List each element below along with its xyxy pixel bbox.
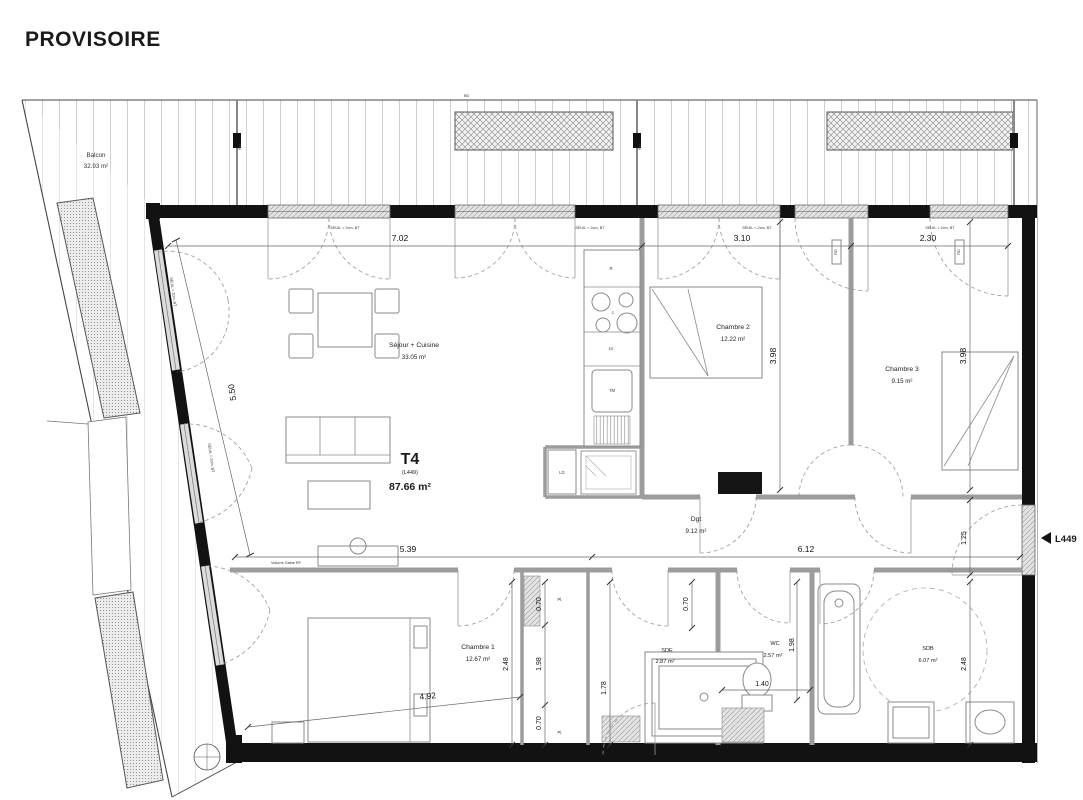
room-label-sejour: Séjour + Cuisine — [389, 342, 439, 349]
duct-note: Volume Gaine RF — [271, 561, 302, 565]
balcony-label: Balcon — [87, 152, 106, 159]
room-area-chambre1: 12.67 m² — [466, 656, 490, 663]
room-label-wc: WC — [770, 641, 779, 647]
sdb-washbasin — [966, 702, 1014, 743]
drawing-status-title: PROVISOIRE — [25, 28, 161, 51]
dim-closet-mid: 1.98 — [536, 657, 543, 671]
wardrobe — [718, 472, 762, 494]
seuil-note: SEUIL < 2cm, BT — [925, 226, 955, 230]
room-area-sejour: 33.05 m² — [402, 354, 426, 361]
dim-sejour-bottom: 5.39 — [400, 544, 417, 554]
room-area-chambre3: 9.15 m² — [892, 378, 913, 385]
washer-code: LG — [559, 470, 565, 475]
hob-code: C — [612, 311, 615, 315]
dim-ch3-side: 3.98 — [958, 347, 968, 364]
planter-tie — [47, 421, 88, 424]
dim-sde-side: 1.78 — [601, 681, 608, 695]
duct-box — [581, 451, 636, 494]
closet-code: Pl. — [558, 730, 563, 735]
balcony-divider-post — [1010, 133, 1018, 148]
rd-code: RD — [834, 249, 838, 255]
seuil-note: SEUIL < 2cm, BT — [742, 226, 772, 230]
wc-duct — [722, 708, 764, 742]
dim-sejour-top: 7.02 — [392, 233, 409, 243]
room-label-sde: SDE — [661, 648, 673, 654]
room-area-sdb: 6.07 m² — [919, 658, 938, 664]
window — [658, 205, 780, 218]
bd-code: BD — [464, 94, 470, 98]
dim-entry-side: 1.25 — [961, 531, 968, 545]
unit-lot: (L449) — [402, 470, 418, 476]
dim-ch2-side: 3.98 — [768, 347, 778, 364]
dim-sde-top: 0.70 — [683, 597, 690, 611]
dim-ch3-top: 2.30 — [920, 233, 937, 243]
pm-code: PM — [238, 144, 242, 150]
room-area-dgt: 9.12 m² — [686, 528, 707, 535]
entry-marker-label: L449 — [1055, 534, 1077, 545]
dim-ch2-top: 3.10 — [734, 233, 751, 243]
room-label-chambre1: Chambre 1 — [461, 644, 495, 651]
dim-sdb-side: 2.48 — [961, 657, 968, 671]
sink-code: TM — [609, 388, 616, 393]
dishwasher-code: LV — [609, 346, 614, 351]
unit-type: T4 — [401, 451, 420, 468]
dim-ch1-bottom: 4.92 — [419, 690, 437, 702]
window — [268, 205, 390, 218]
sink-drainer — [594, 416, 630, 444]
room-area-wc: 2.57 m² — [764, 653, 783, 659]
sde-duct — [602, 716, 640, 742]
balcony-screen — [455, 112, 613, 150]
dim-closet-bottom: 0.70 — [536, 716, 543, 730]
floor-plan: PROVISOIRE Balcon 32.93 m² BD PM PM — [0, 0, 1083, 800]
wall-south — [228, 743, 1037, 762]
rd-code: RD — [957, 249, 961, 255]
dim-wc-width: 1.40 — [755, 681, 769, 688]
dim-ch1-side: 2.48 — [503, 657, 510, 671]
dim-wc-side: 1.98 — [789, 638, 796, 652]
room-label-dgt: Dgt — [691, 516, 702, 523]
room-label-sdb: SDB — [922, 646, 934, 652]
planter-box — [88, 417, 131, 595]
window — [455, 205, 575, 218]
dim-closet-top: 0.70 — [536, 597, 543, 611]
closet-code: Pl. — [558, 597, 563, 602]
unit-area: 87.66 m² — [389, 481, 432, 493]
room-area-sde: 2.87 m² — [656, 659, 675, 665]
fridge-code: R — [609, 266, 612, 271]
entry-arrow-icon — [1041, 532, 1051, 544]
room-area-chambre2: 12.22 m² — [721, 336, 745, 343]
pm-code: PM — [638, 144, 642, 150]
entry-marker: L449 — [1041, 532, 1077, 545]
balcony-screen — [827, 112, 1013, 150]
dim-dgt-width: 6.12 — [798, 544, 815, 554]
room-label-chambre2: Chambre 2 — [716, 324, 750, 331]
seuil-note: SEUIL < 2cm, BT — [575, 226, 605, 230]
sdb-cabinet — [888, 702, 934, 743]
entrance-opening — [1022, 505, 1035, 575]
window — [930, 205, 1008, 218]
balcony-area: 32.93 m² — [84, 163, 108, 170]
wall-east — [1022, 205, 1035, 763]
room-label-chambre3: Chambre 3 — [885, 366, 919, 373]
seuil-note: SEUIL < 2cm, BT — [330, 226, 360, 230]
window — [795, 205, 868, 218]
